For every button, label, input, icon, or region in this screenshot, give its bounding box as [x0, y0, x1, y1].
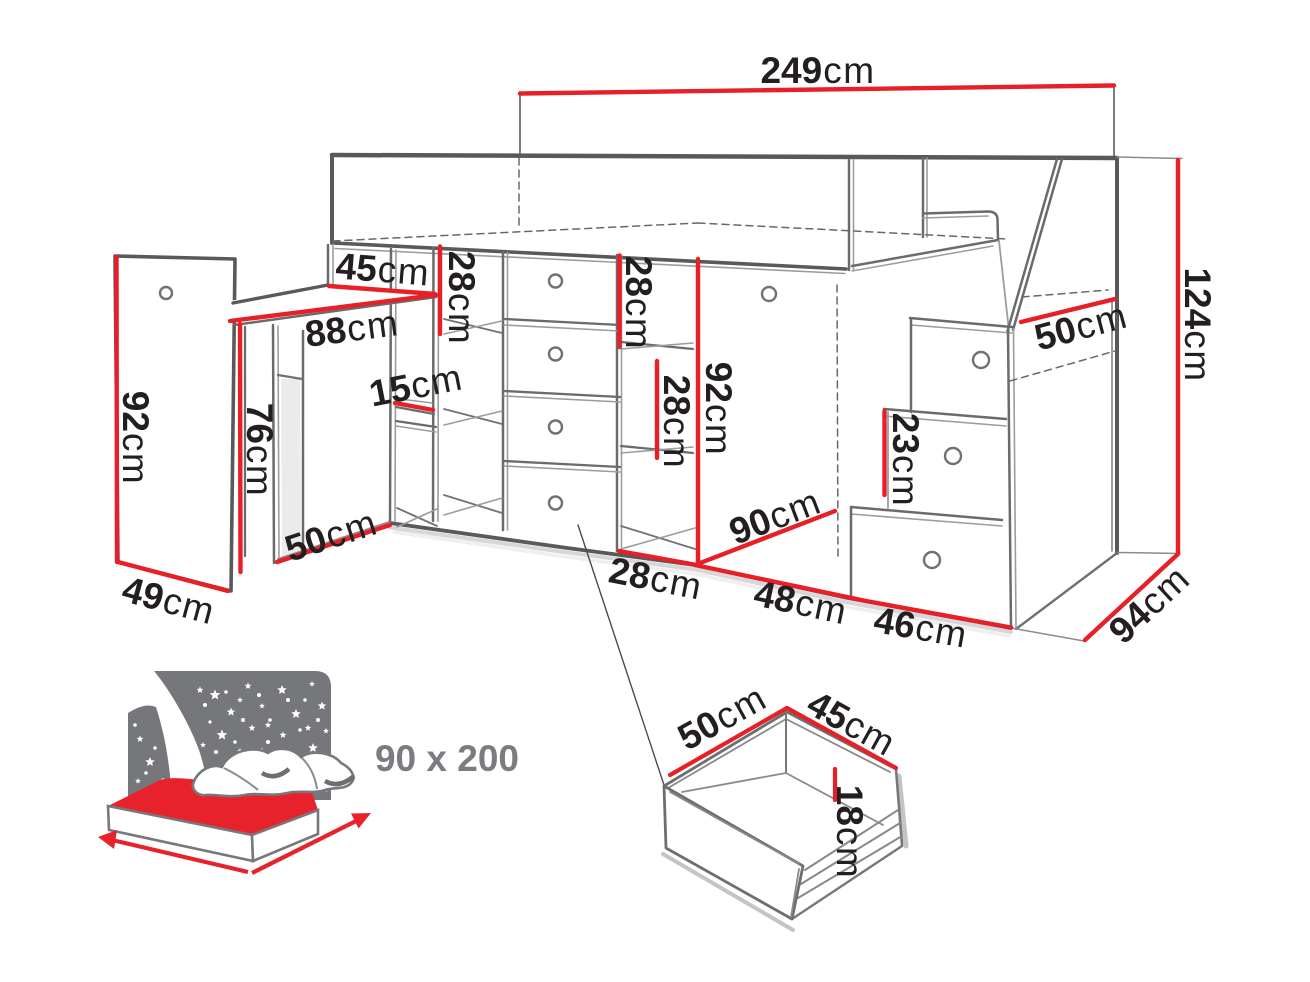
svg-text:18cm: 18cm — [829, 785, 870, 879]
svg-text:28cm: 28cm — [618, 256, 659, 350]
svg-text:76cm: 76cm — [239, 403, 280, 497]
svg-text:92cm: 92cm — [115, 391, 156, 485]
svg-text:23cm: 23cm — [885, 413, 926, 507]
svg-text:249cm: 249cm — [760, 50, 875, 91]
svg-text:28cm: 28cm — [441, 251, 482, 345]
svg-text:90 x 200: 90 x 200 — [375, 738, 519, 779]
svg-text:28cm: 28cm — [656, 375, 697, 469]
svg-text:124cm: 124cm — [1177, 267, 1218, 382]
svg-text:92cm: 92cm — [698, 362, 739, 456]
svg-text:45cm: 45cm — [334, 245, 431, 293]
